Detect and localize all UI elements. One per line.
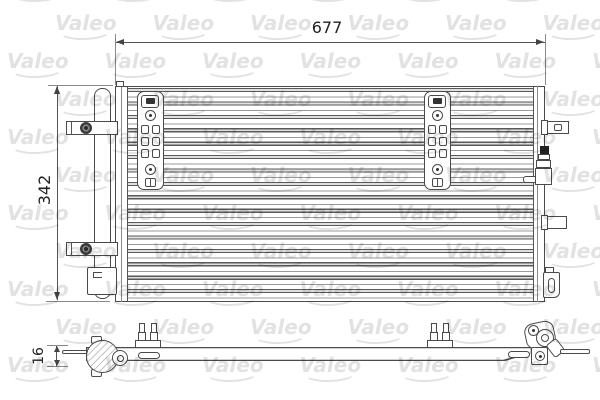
pressure-valve-thread (536, 160, 551, 168)
left-header-line-inner (127, 86, 128, 302)
watermark: Valeo (495, 0, 553, 3)
watermark: Valeo (592, 0, 600, 3)
watermark: Valeo (397, 49, 455, 79)
top-left-tab (116, 81, 124, 87)
bracket-slot (152, 125, 160, 134)
outlet-fitting-clip (541, 215, 548, 230)
bracket-hole-upper (432, 110, 443, 121)
arrow-right-icon (536, 39, 544, 45)
bracket-slot (141, 149, 149, 158)
bracket-hole-lower (145, 164, 156, 175)
extension-line (115, 34, 116, 85)
side-bracket-lower-endcap (71, 242, 72, 256)
watermark: Valeo (7, 49, 65, 79)
watermark: Valeo (543, 87, 600, 117)
condenser-tubes (128, 88, 533, 300)
extension-line (46, 301, 110, 302)
watermark: Valeo (55, 11, 113, 41)
bracket-slot (428, 125, 436, 134)
side-bracket-lower (66, 242, 118, 256)
profile-slot-right (508, 351, 530, 358)
bracket-top-slot (146, 98, 155, 104)
watermark: Valeo (300, 49, 358, 79)
pressure-valve-body (535, 168, 552, 185)
profile-slot-left (138, 352, 160, 359)
bracket-slot (439, 125, 447, 134)
connector-block-hole (535, 351, 545, 361)
inlet-fitting-slot (554, 124, 562, 131)
extension-line (48, 85, 113, 86)
drier-box-spout (93, 272, 102, 278)
dimension-width-label: 677 (297, 19, 357, 37)
dimension-width-line (115, 42, 545, 43)
face-bracket-right (424, 91, 451, 190)
receiver-drier-box (87, 267, 117, 295)
watermark: Valeo (592, 353, 600, 383)
dimension-height-label: 342 (36, 173, 54, 207)
technical-drawing-canvas: 677 342 16 (0, 0, 600, 400)
mounting-peg-right (427, 322, 453, 348)
dimension-thickness-label: 16 (30, 344, 48, 368)
bracket-hole-upper (145, 110, 156, 121)
watermark: Valeo (7, 0, 65, 3)
bracket-hole-lower (432, 164, 443, 175)
screw-icon (80, 243, 92, 255)
watermark: Valeo (153, 11, 211, 41)
outlet-fitting (546, 216, 567, 229)
watermark: Valeo (300, 0, 358, 3)
pressure-valve-stub (523, 176, 536, 183)
bottom-connector-slot (548, 278, 555, 293)
watermark: Valeo (543, 11, 600, 41)
watermark: Valeo (153, 315, 211, 345)
right-header-line-inner (533, 86, 534, 302)
bracket-slot (152, 149, 160, 158)
watermark: Valeo (202, 0, 260, 3)
bracket-bottom-slot-bar (150, 179, 152, 186)
dimension-height-line (57, 86, 58, 300)
watermark: Valeo (397, 0, 455, 3)
bracket-slot (141, 125, 149, 134)
extension-line (47, 366, 68, 367)
screw-icon (80, 122, 92, 134)
left-header-line-outer (121, 86, 122, 302)
bracket-slot (428, 149, 436, 158)
watermark: Valeo (495, 49, 553, 79)
drier-pipe-end (112, 350, 128, 366)
arrow-up-icon (54, 86, 60, 94)
side-bracket-upper-endcap (71, 121, 72, 135)
watermark: Valeo (250, 315, 308, 345)
bracket-slot (428, 137, 436, 146)
side-bracket-upper (66, 121, 118, 135)
connector-pipe-stub (560, 349, 590, 354)
bracket-slot (439, 149, 447, 158)
arrow-left-icon (116, 39, 124, 45)
watermark: Valeo (348, 315, 406, 345)
watermark: Valeo (592, 49, 600, 79)
bracket-top-slot (433, 98, 442, 104)
extension-line (545, 34, 546, 85)
right-header-line-outer (537, 86, 538, 302)
bracket-slot (141, 137, 149, 146)
watermark: Valeo (592, 201, 600, 231)
drier-pipe (62, 350, 89, 354)
watermark: Valeo (445, 315, 503, 345)
watermark: Valeo (105, 0, 163, 3)
watermark: Valeo (592, 125, 600, 155)
bracket-slot (439, 137, 447, 146)
bracket-bottom-slot-bar (437, 179, 439, 186)
watermark: Valeo (202, 49, 260, 79)
face-bracket-left (137, 91, 164, 190)
extension-line (47, 345, 68, 346)
watermark: Valeo (543, 239, 600, 269)
bracket-slot (152, 137, 160, 146)
watermark: Valeo (592, 277, 600, 307)
watermark: Valeo (105, 49, 163, 79)
mounting-peg-left (135, 322, 161, 348)
pressure-valve-cap (540, 146, 549, 154)
arrow-up-icon (54, 346, 60, 352)
inlet-fitting-clip (541, 120, 548, 135)
arrow-down-icon (54, 292, 60, 300)
watermark: Valeo (445, 11, 503, 41)
